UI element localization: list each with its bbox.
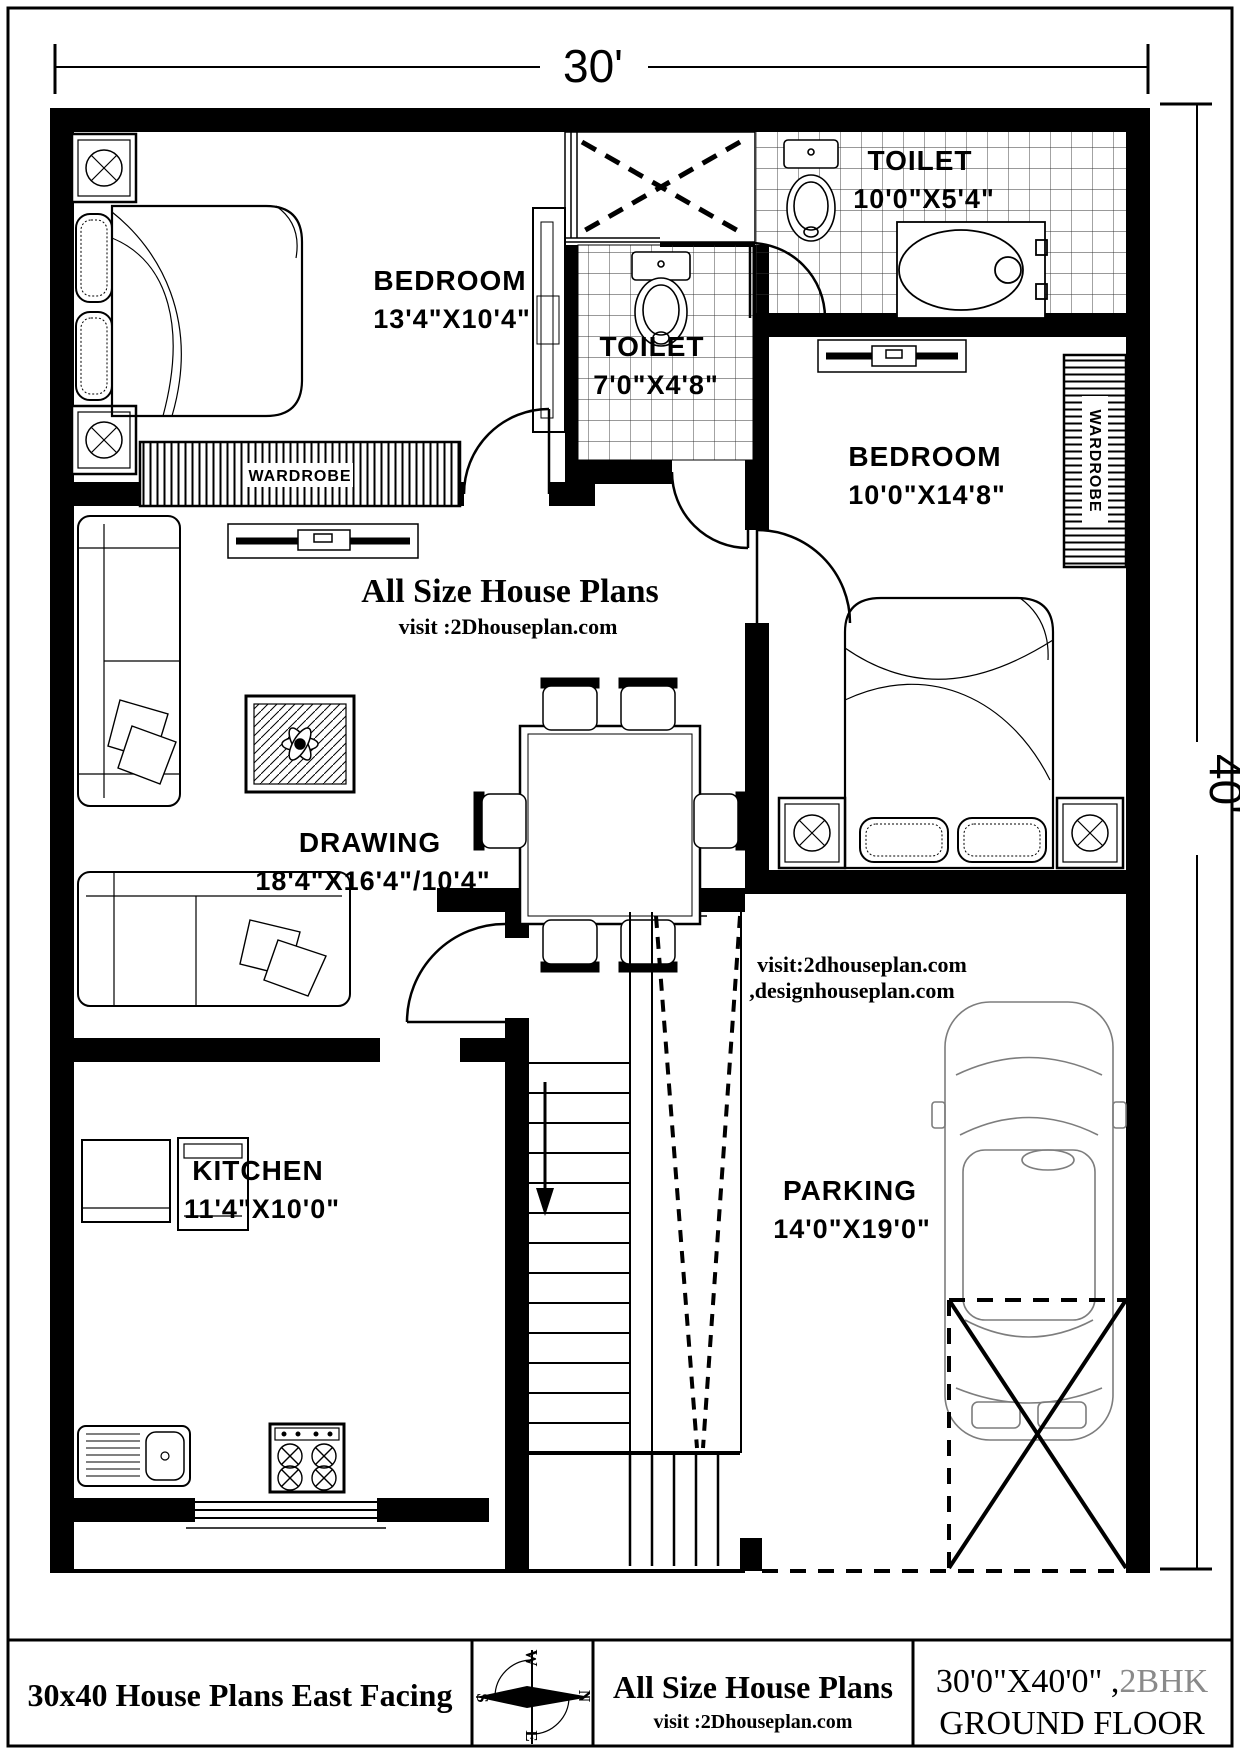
kitchen-size: 11'4"X10'0" <box>184 1194 340 1224</box>
kitchen-window <box>186 1502 386 1528</box>
parking-area <box>932 1002 1126 1568</box>
drawing-size: 18'4"X16'4"/10'4" <box>255 866 490 896</box>
dimension-top: 30' <box>55 40 1148 94</box>
wardrobe2: WARDROBE <box>1064 355 1126 567</box>
toilet2-wc-icon <box>784 140 838 241</box>
floor-text: GROUND FLOOR <box>939 1705 1205 1742</box>
brand-text: All Size House Plans <box>613 1669 893 1705</box>
stove-icon <box>270 1424 344 1492</box>
sofa <box>78 516 180 806</box>
plot-text: 30'0"X40'0" ,2BHK <box>936 1663 1209 1700</box>
counter-unit <box>82 1140 170 1222</box>
lamp-icon <box>72 134 136 202</box>
bathtub-icon <box>897 222 1047 318</box>
bed <box>112 206 302 416</box>
dimension-top-label: 30' <box>563 40 623 92</box>
shower-box <box>565 132 755 242</box>
dimension-right-label: 40' <box>1200 754 1240 814</box>
main-door-arc <box>407 924 505 1022</box>
parking-gate <box>949 1300 1126 1568</box>
parking-size: 14'0"X19'0" <box>773 1214 931 1244</box>
parking-name: PARKING <box>783 1175 917 1206</box>
staircase <box>529 912 741 1566</box>
caption-text: 30x40 House Plans East Facing <box>28 1677 453 1713</box>
compass-south: S <box>473 1693 492 1702</box>
wardrobe2-label: WARDROBE <box>1086 409 1103 512</box>
drawing-dresser <box>228 524 418 558</box>
bedroom2-size: 10'0"X14'8" <box>848 480 1006 510</box>
bedroom1-name: BEDROOM <box>373 265 526 296</box>
pillow-icon <box>76 214 112 302</box>
cabinet <box>533 208 565 432</box>
compass-west: W <box>522 1650 541 1667</box>
bedroom2-dresser <box>818 340 966 372</box>
floor-plan-page: 30' 40' <box>0 0 1240 1754</box>
stair-direction-arrow <box>536 1082 554 1216</box>
bedroom2-door-arc <box>757 530 850 623</box>
pillow-icon <box>860 818 948 862</box>
wardrobe1-label: WARDROBE <box>248 468 351 485</box>
bedroom1-furniture <box>72 134 302 474</box>
bedroom2-furniture <box>779 598 1123 868</box>
wardrobe1: WARDROBE <box>140 442 460 506</box>
lamp-icon <box>779 798 845 868</box>
toilet1-size: 7'0"X4'8" <box>593 370 719 400</box>
parking-note-2: ,designhouseplan.com <box>749 978 954 1003</box>
car-icon <box>932 1002 1126 1440</box>
toilet1-door-arc <box>672 472 748 548</box>
kitchen-appliances <box>78 1138 344 1492</box>
parking-note-1: visit:2dhouseplan.com <box>757 952 967 977</box>
title-bar: 30x40 House Plans East Facing W N S E Al… <box>8 1640 1232 1746</box>
compass-east: E <box>522 1730 541 1741</box>
kitchen-name: KITCHEN <box>192 1155 323 1186</box>
lamp-icon <box>1057 798 1123 868</box>
toilet2-name: TOILET <box>867 145 972 176</box>
entry-steps <box>630 1453 718 1566</box>
pillow-icon <box>76 312 112 400</box>
dimension-right: 40' <box>1160 104 1240 1569</box>
brand-subtext: visit :2Dhouseplan.com <box>654 1711 853 1733</box>
watermark-subtitle: visit :2Dhouseplan.com <box>399 614 618 639</box>
toilet2-size: 10'0"X5'4" <box>853 184 995 214</box>
floor-plan-canvas: 30' 40' <box>0 0 1240 1754</box>
planter-table <box>246 696 354 792</box>
compass-north: N <box>575 1690 594 1703</box>
toilet1-name: TOILET <box>599 331 704 362</box>
pillow-icon <box>958 818 1046 862</box>
sink-icon <box>78 1426 190 1486</box>
bedroom1-size: 13'4"X10'4" <box>373 304 531 334</box>
bedroom2-name: BEDROOM <box>848 441 1001 472</box>
drawing-name: DRAWING <box>299 827 441 858</box>
watermark-title: All Size House Plans <box>361 573 659 610</box>
